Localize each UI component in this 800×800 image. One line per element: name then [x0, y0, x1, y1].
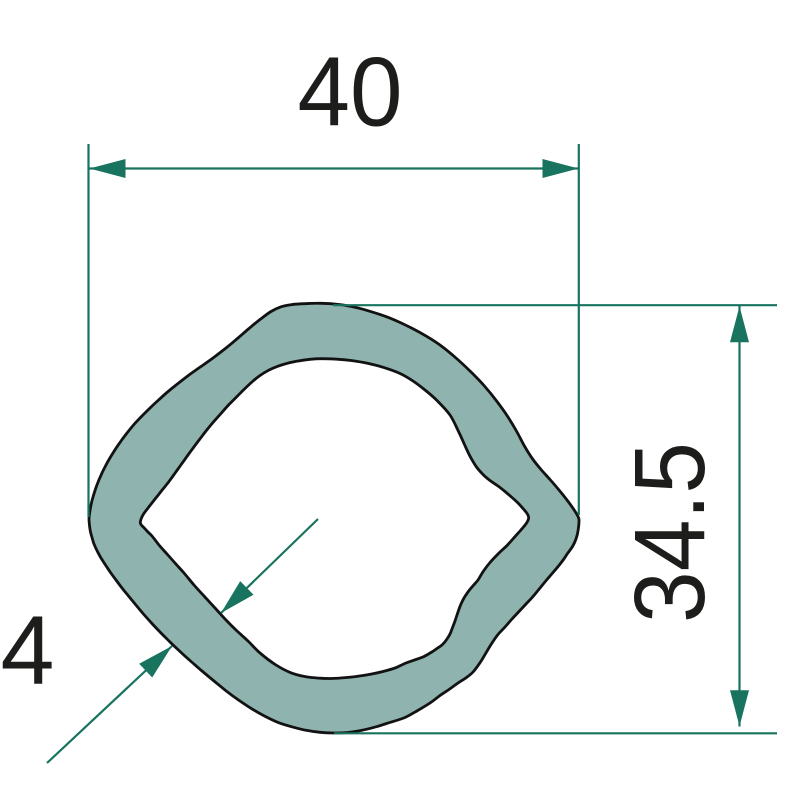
svg-text:4: 4 [1, 596, 55, 705]
svg-text:40: 40 [298, 37, 403, 147]
svg-text:34.5: 34.5 [614, 442, 726, 623]
